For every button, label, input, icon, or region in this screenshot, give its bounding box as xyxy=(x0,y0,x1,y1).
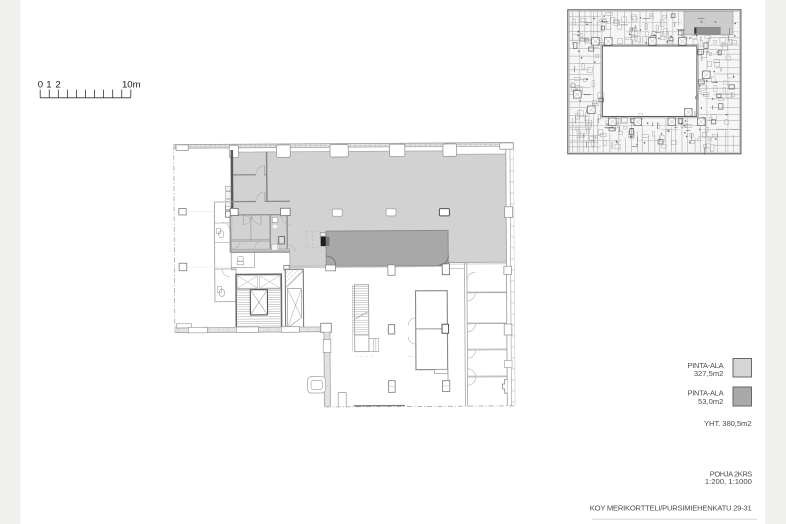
svg-text:327,5m2: 327,5m2 xyxy=(694,369,724,378)
svg-text:53,0m2: 53,0m2 xyxy=(698,397,723,406)
svg-text:KOY MERIKORTTELI/PURSIMIEHENKA: KOY MERIKORTTELI/PURSIMIEHENKATU 29-31 xyxy=(590,504,752,513)
svg-text:10m: 10m xyxy=(122,79,141,90)
svg-text:YHT. 380,5m2: YHT. 380,5m2 xyxy=(704,419,752,428)
svg-text:1:200, 1:1000: 1:200, 1:1000 xyxy=(705,477,752,486)
svg-text:1: 1 xyxy=(46,79,51,90)
svg-text:2: 2 xyxy=(55,79,60,90)
svg-text:0: 0 xyxy=(38,79,43,90)
